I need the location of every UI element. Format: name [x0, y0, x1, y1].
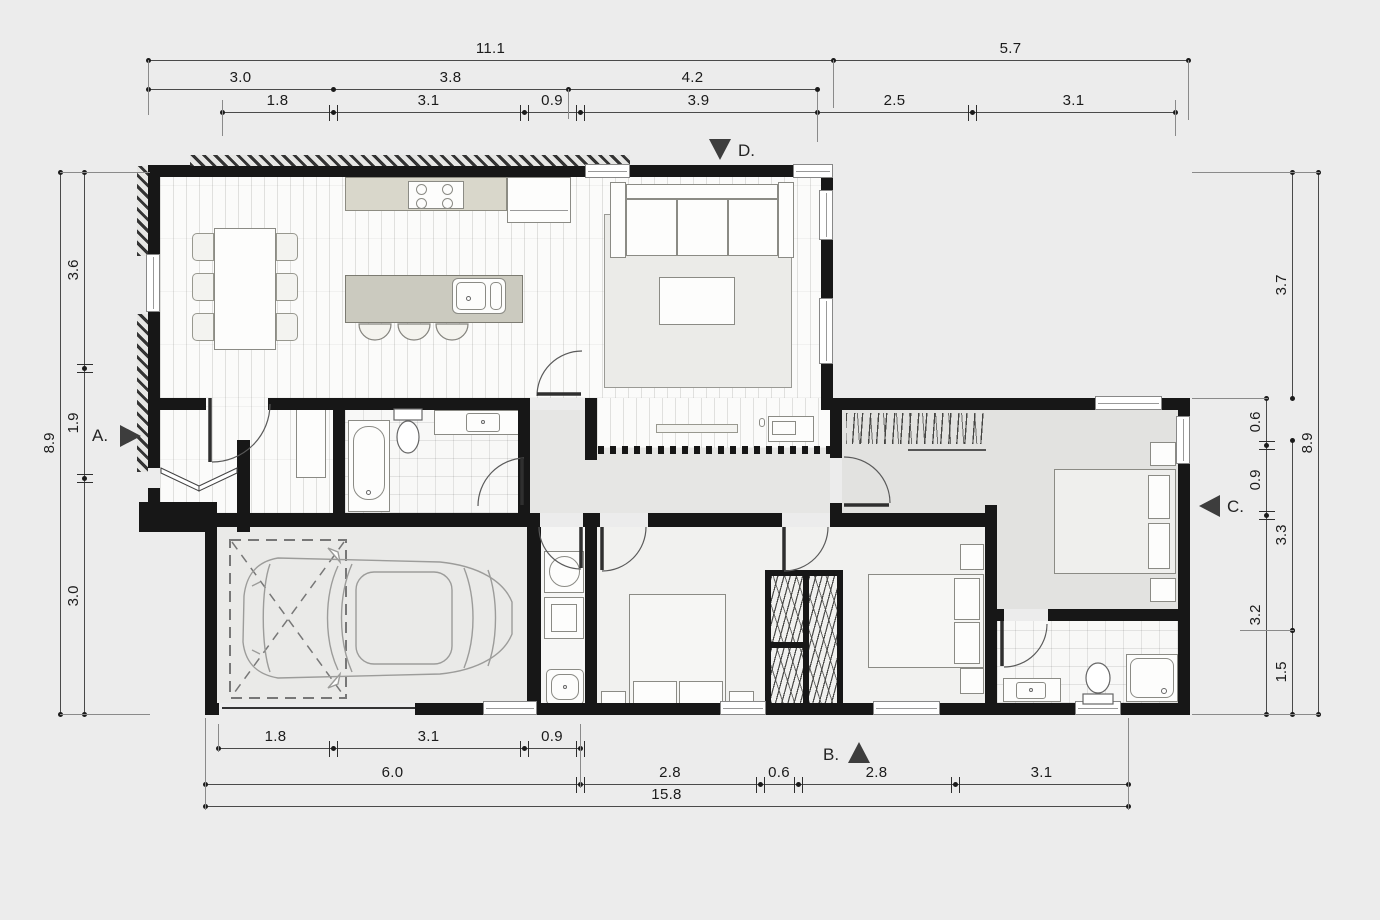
dim-label: 3.1 [955, 764, 1128, 781]
dim-segment-h: 2.5 [817, 112, 972, 113]
dim-label: 3.1 [972, 92, 1175, 109]
extension-line [60, 172, 150, 173]
dim-segment-h: 6.0 [205, 784, 580, 785]
tick [77, 364, 93, 373]
entry-doors [161, 468, 237, 491]
dim-segment-h: 0.6 [760, 784, 798, 785]
island-stools [359, 324, 468, 340]
dim-segment-h: 1.8 [222, 112, 333, 113]
dim-label: 3.8 [333, 69, 568, 86]
dim-label: 3.0 [148, 69, 333, 86]
dim-label: 3.1 [333, 728, 524, 745]
dim-label: 3.9 [580, 92, 817, 109]
tick [77, 474, 93, 483]
extension-line [1240, 630, 1294, 631]
dim-segment-h: 3.1 [972, 112, 1175, 113]
dim-label: 0.9 [1247, 470, 1264, 491]
marker-c-arrow-icon [1199, 495, 1220, 517]
dim-segment-h: 2.8 [580, 784, 760, 785]
extension-line [817, 92, 818, 142]
marker-c-label: C. [1227, 497, 1244, 517]
dim-label: 2.5 [817, 92, 972, 109]
dim-segment-h: 3.9 [580, 112, 817, 113]
dim-segment-v: 8.9 [1318, 172, 1319, 714]
dim-label: 8.9 [41, 433, 58, 454]
marker-a-label: A. [92, 426, 108, 446]
dim-segment-v: 1.9 [84, 368, 85, 478]
dim-label: 3.2 [1247, 604, 1264, 625]
extension-line [218, 724, 219, 752]
dim-segment-v: 3.6 [84, 172, 85, 368]
dim-label: 3.0 [65, 586, 82, 607]
dim-label: 3.3 [1273, 525, 1290, 546]
extension-line [1188, 60, 1189, 120]
dim-segment-h: 0.9 [524, 748, 580, 749]
dim-segment-v: 3.7 [1292, 172, 1293, 398]
marker-d-label: D. [738, 141, 755, 161]
dim-segment-v: 8.9 [60, 172, 61, 714]
dim-segment-h: 3.1 [333, 112, 524, 113]
extension-line [1192, 714, 1320, 715]
dim-label: 1.5 [1273, 662, 1290, 683]
dim-segment-h: 11.1 [148, 60, 833, 61]
dim-label: 0.6 [760, 764, 798, 781]
dim-segment-h: 15.8 [205, 806, 1128, 807]
extension-line [222, 100, 223, 136]
dim-segment-v: 0.9 [1266, 445, 1267, 515]
dim-segment-v: 3.2 [1266, 515, 1267, 714]
marker-b-label: B. [823, 745, 839, 765]
door-leaves [210, 394, 1002, 666]
garage-door-swing [230, 540, 346, 698]
extension-line [60, 714, 150, 715]
extension-line [1128, 718, 1129, 810]
extension-line [580, 724, 581, 788]
extension-line [833, 60, 834, 108]
dim-label: 1.9 [65, 413, 82, 434]
extension-line [1192, 398, 1268, 399]
car [243, 548, 512, 688]
dim-segment-h: 0.9 [524, 112, 580, 113]
dim-segment-h: 1.8 [218, 748, 333, 749]
tick [1259, 511, 1275, 520]
dim-label: 5.7 [833, 40, 1188, 57]
dim-label: 3.6 [65, 260, 82, 281]
extension-line [148, 60, 149, 115]
marker-a-arrow-icon [120, 425, 141, 447]
dim-label: 1.8 [222, 92, 333, 109]
dim-label: 2.8 [798, 764, 955, 781]
tick [1259, 441, 1275, 450]
dim-label: 2.8 [580, 764, 760, 781]
floor-plan-canvas: 11.1 5.7 3.0 3.8 4.2 1.8 3.1 0.9 3.9 2.5… [0, 0, 1380, 920]
extension-line [1192, 172, 1320, 173]
extension-line [1175, 100, 1176, 136]
dim-segment-h: 3.0 [148, 89, 333, 90]
dim-label: 4.2 [568, 69, 817, 86]
toilet [394, 409, 1113, 704]
dim-segment-v: 1.5 [1292, 630, 1293, 714]
dim-label: 15.8 [205, 786, 1128, 803]
dim-segment-v: 3.3 [1292, 440, 1293, 630]
dim-label: 8.9 [1299, 433, 1316, 454]
dim-label: 11.1 [148, 40, 833, 57]
dim-label: 0.9 [524, 728, 580, 745]
dim-segment-h: 3.8 [333, 89, 568, 90]
dim-segment-v: 3.0 [84, 478, 85, 714]
dim-segment-v: 0.6 [1266, 398, 1267, 445]
dim-label: 3.1 [333, 92, 524, 109]
dim-segment-h: 3.1 [955, 784, 1128, 785]
dim-label: 0.6 [1247, 411, 1264, 432]
dim-label: 1.8 [218, 728, 333, 745]
dim-label: 6.0 [205, 764, 580, 781]
dim-segment-h: 4.2 [568, 89, 817, 90]
dim-segment-h: 2.8 [798, 784, 955, 785]
dim-segment-h: 3.1 [333, 748, 524, 749]
marker-b-arrow-icon [848, 742, 870, 763]
door-arcs [212, 351, 1047, 667]
dim-label: 0.9 [524, 92, 580, 109]
marker-d-arrow-icon [709, 139, 731, 160]
dim-segment-h: 5.7 [833, 60, 1188, 61]
extension-line [205, 718, 206, 810]
extension-line [568, 89, 569, 119]
dim-label: 3.7 [1273, 275, 1290, 296]
